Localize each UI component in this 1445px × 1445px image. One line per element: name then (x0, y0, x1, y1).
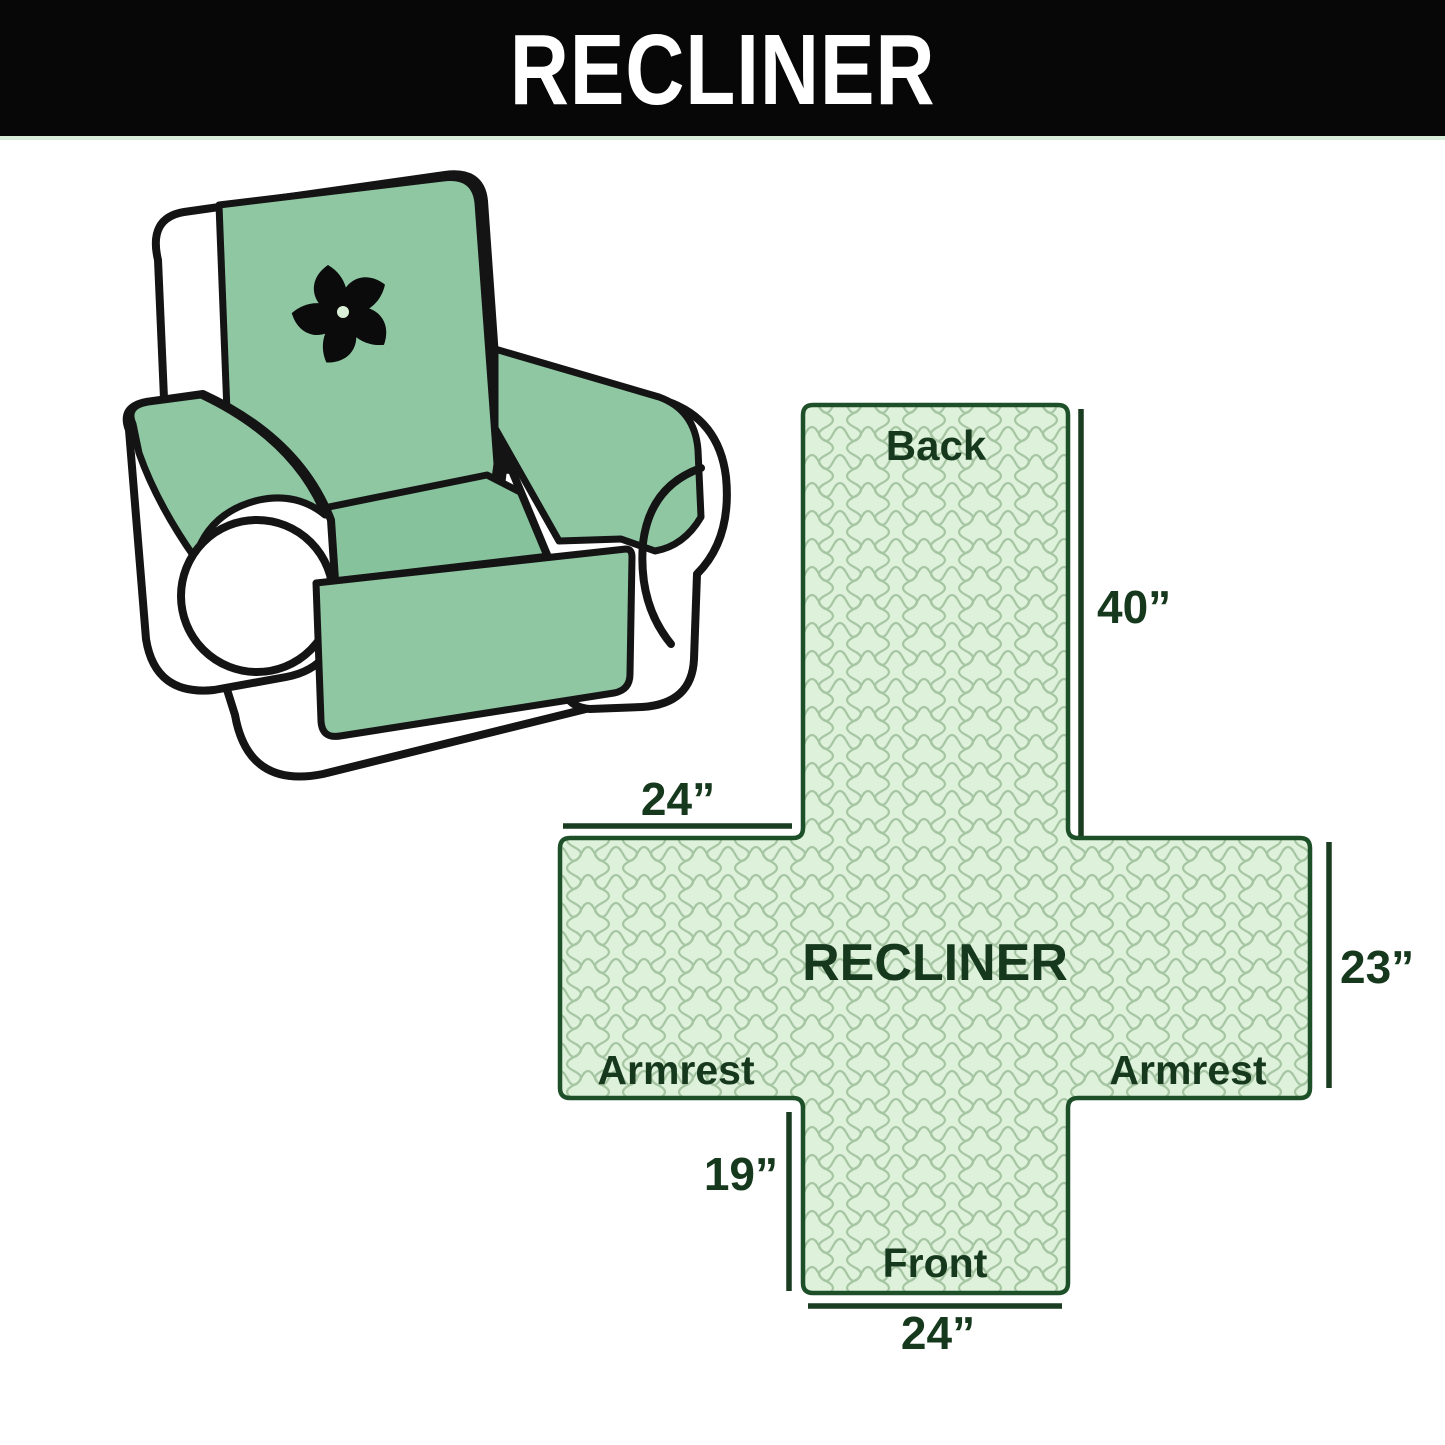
dim-side-depth: 23” (1340, 941, 1414, 993)
label-armrest-right: Armrest (1109, 1047, 1267, 1093)
cover-pattern-svg: Back 40” 24” RECLINER 23” Armrest Armres… (540, 383, 1442, 1378)
cover-pattern-diagram: Back 40” 24” RECLINER 23” Armrest Armres… (540, 383, 1442, 1378)
dim-front-width: 24” (901, 1307, 975, 1359)
title-banner: RECLINER (0, 0, 1445, 140)
left-arm-roll (181, 520, 333, 672)
dim-back-length: 40” (1097, 581, 1171, 633)
dim-top-width: 24” (641, 773, 715, 825)
label-recliner-center: RECLINER (802, 934, 1068, 992)
label-front: Front (883, 1240, 988, 1286)
page-title: RECLINER (510, 16, 936, 120)
label-back: Back (886, 422, 987, 469)
label-armrest-left: Armrest (597, 1047, 755, 1093)
dim-front-drop: 19” (704, 1148, 778, 1200)
cross-pattern-shape (560, 405, 1310, 1293)
